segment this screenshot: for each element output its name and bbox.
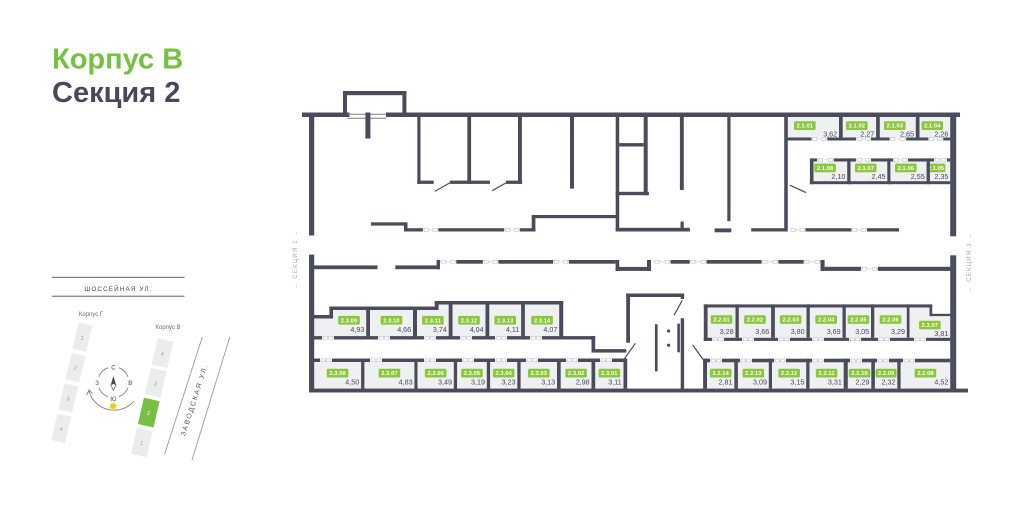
svg-text:2.2.12: 2.2.12	[781, 371, 797, 377]
svg-text:2.1.06: 2.1.06	[898, 166, 914, 172]
svg-text:2.3.10: 2.3.10	[383, 318, 399, 324]
svg-text:4,04: 4,04	[470, 325, 484, 334]
svg-text:2.1.08: 2.1.08	[817, 166, 833, 172]
svg-text:2,81: 2,81	[719, 377, 733, 386]
svg-text:С: С	[111, 366, 116, 372]
svg-text:2,10: 2,10	[831, 172, 845, 181]
svg-text:3,05: 3,05	[855, 327, 869, 336]
svg-text:3,81: 3,81	[934, 329, 948, 338]
svg-text:З: З	[95, 381, 99, 387]
svg-text:3,69: 3,69	[827, 327, 841, 336]
svg-text:2.3.09: 2.3.09	[341, 318, 357, 324]
svg-text:ЗАВОДСКАЯ УЛ.: ЗАВОДСКАЯ УЛ.	[180, 363, 210, 437]
svg-text:2,27: 2,27	[860, 130, 874, 139]
svg-text:3,31: 3,31	[828, 377, 842, 386]
svg-text:3,15: 3,15	[790, 377, 804, 386]
svg-text:2.2.02: 2.2.02	[747, 318, 763, 324]
svg-text:4,52: 4,52	[934, 377, 948, 386]
svg-text:3,80: 3,80	[791, 327, 805, 336]
svg-text:2.2.04: 2.2.04	[818, 318, 835, 324]
svg-text:2.3.07: 2.3.07	[381, 371, 397, 377]
svg-text:3,74: 3,74	[433, 325, 447, 334]
svg-text:3,66: 3,66	[755, 327, 769, 336]
svg-text:2,29: 2,29	[856, 377, 870, 386]
svg-text:2,65: 2,65	[900, 130, 914, 139]
svg-text:2.3.14: 2.3.14	[534, 318, 551, 324]
svg-text:2.2.08: 2.2.08	[917, 371, 933, 377]
svg-text:2.3.01: 2.3.01	[601, 371, 617, 377]
svg-text:3,13: 3,13	[541, 377, 555, 386]
svg-text:2.3.04: 2.3.04	[495, 371, 512, 377]
svg-text:2.3.13: 2.3.13	[497, 318, 513, 324]
svg-text:4,83: 4,83	[399, 377, 413, 386]
svg-text:3,62: 3,62	[823, 130, 837, 139]
svg-text:2.3.02: 2.3.02	[568, 371, 584, 377]
svg-text:2.2.13: 2.2.13	[745, 371, 761, 377]
svg-text:4,11: 4,11	[506, 325, 519, 334]
svg-text:2.2.07: 2.2.07	[922, 323, 938, 329]
svg-text:3,19: 3,19	[471, 377, 485, 386]
svg-text:2.2.01: 2.2.01	[713, 318, 729, 324]
svg-text:2,98: 2,98	[576, 377, 590, 386]
svg-text:4,07: 4,07	[543, 325, 557, 334]
svg-text:2,45: 2,45	[872, 172, 886, 181]
svg-text:2.3.11: 2.3.11	[425, 318, 441, 324]
svg-text:3,23: 3,23	[502, 377, 516, 386]
svg-text:2.3.03: 2.3.03	[531, 371, 547, 377]
svg-text:2.1.05: 2.1.05	[928, 166, 944, 172]
svg-text:← СЕКЦИЯ 1 →: ← СЕКЦИЯ 1 →	[293, 229, 299, 289]
svg-text:В: В	[128, 381, 132, 387]
svg-text:2,32: 2,32	[882, 377, 896, 386]
svg-text:ШОССЕЙНАЯ УЛ.: ШОССЕЙНАЯ УЛ.	[84, 284, 152, 293]
svg-text:2.2.14: 2.2.14	[712, 371, 729, 377]
svg-text:← СЕКЦИЯ 3 →: ← СЕКЦИЯ 3 →	[967, 232, 973, 292]
svg-text:2.2.05: 2.2.05	[850, 318, 866, 324]
svg-text:Корпус В: Корпус В	[52, 44, 183, 76]
svg-text:2.1.07: 2.1.07	[858, 166, 874, 172]
svg-text:2.2.06: 2.2.06	[882, 318, 898, 324]
svg-text:2.1.01: 2.1.01	[797, 124, 813, 130]
svg-text:2.2.09: 2.2.09	[878, 371, 894, 377]
svg-text:Секция 2: Секция 2	[52, 77, 180, 109]
svg-text:3,49: 3,49	[438, 377, 452, 386]
svg-text:2.3.12: 2.3.12	[461, 318, 477, 324]
svg-text:3,28: 3,28	[720, 327, 734, 336]
svg-text:3,09: 3,09	[753, 377, 767, 386]
svg-text:2,55: 2,55	[911, 172, 925, 181]
svg-text:2,26: 2,26	[934, 130, 948, 139]
svg-text:Корпус Г: Корпус Г	[79, 312, 104, 318]
svg-text:2.2.10: 2.2.10	[851, 371, 867, 377]
svg-text:2,35: 2,35	[934, 172, 948, 181]
svg-text:4,93: 4,93	[350, 325, 364, 334]
svg-text:4,50: 4,50	[345, 377, 359, 386]
svg-text:2.3.06: 2.3.06	[427, 371, 443, 377]
svg-text:2.2.03: 2.2.03	[782, 318, 798, 324]
svg-text:3,11: 3,11	[608, 377, 621, 386]
svg-text:2.3.08: 2.3.08	[329, 371, 345, 377]
svg-text:2.2.11: 2.2.11	[819, 371, 835, 377]
svg-text:3,29: 3,29	[891, 327, 905, 336]
svg-text:Корпус В: Корпус В	[155, 325, 180, 331]
svg-text:2.3.05: 2.3.05	[464, 371, 480, 377]
svg-text:4,66: 4,66	[397, 325, 411, 334]
